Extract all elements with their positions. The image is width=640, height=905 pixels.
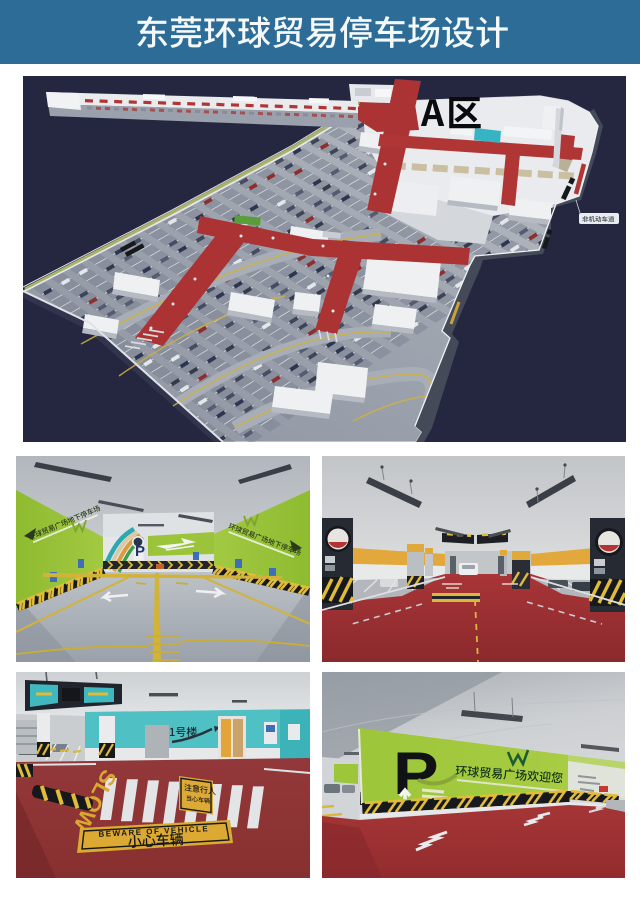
svg-text:P: P: [135, 543, 145, 560]
